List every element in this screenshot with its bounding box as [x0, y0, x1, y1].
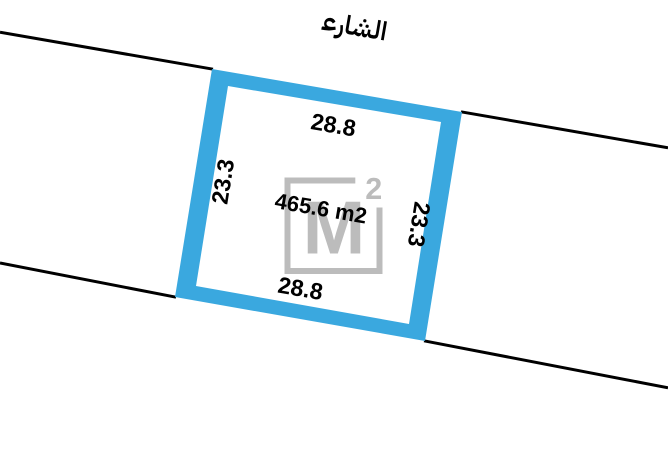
- svg-text:2: 2: [365, 172, 382, 206]
